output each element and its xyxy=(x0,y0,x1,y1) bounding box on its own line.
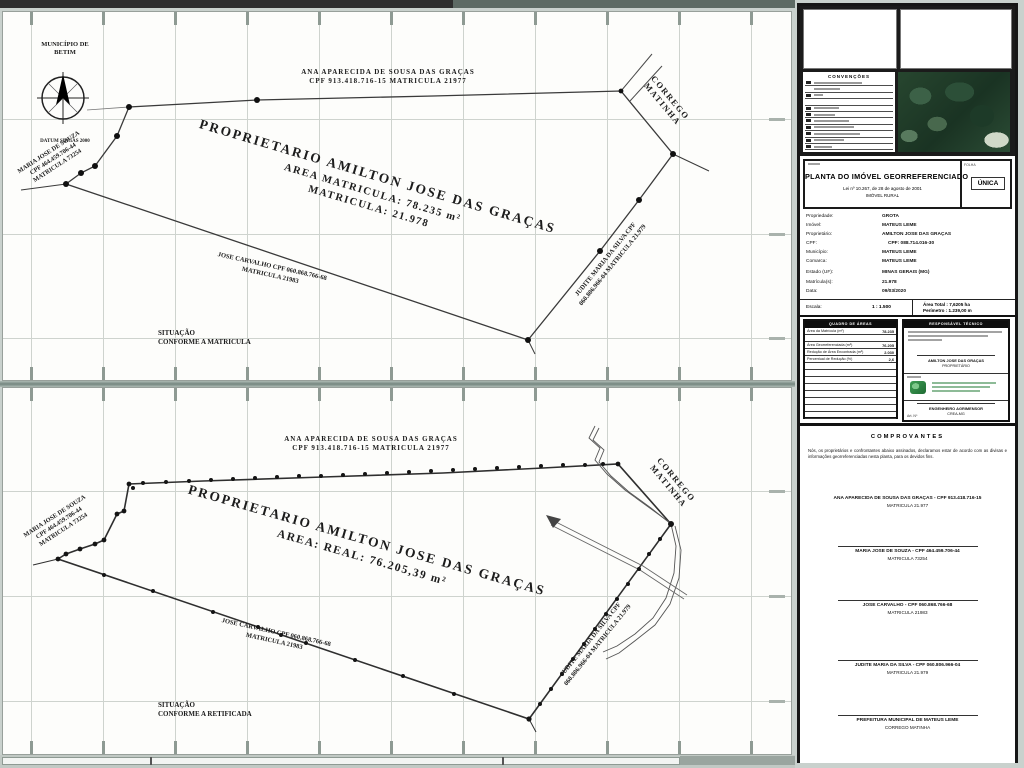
scale-row: Escala: 1 : 1.500 Área Total : 7,6205 ha… xyxy=(800,299,1015,317)
scale-value: 1 : 1.500 xyxy=(872,305,891,310)
sheet-number-value: ÚNICA xyxy=(971,177,1005,190)
stream-lines xyxy=(603,524,676,652)
neighbor-left-label: MARIA JOSE DE SOUZA CPF 464.459.706-44 M… xyxy=(22,493,96,552)
sheet-subtitle1: Lei nº 10.267, de 28 de agosto de 2001 xyxy=(805,186,960,191)
field-value: CPF: 088.714.016-30 xyxy=(888,241,934,246)
map-bottom-drawing: ANA APARECIDA DE SOUSA DAS GRAÇAS CPF 91… xyxy=(3,388,793,756)
field-label: Comarca: xyxy=(806,259,827,264)
sheet-title: PLANTA DO IMÓVEL GEORREFERENCIADO xyxy=(805,172,960,181)
title-block-panel: CONVENÇÕES PLANTA DO IMÓVEL GEORREFERENC… xyxy=(797,3,1018,763)
owner-label: PROPRIETARIO AMILTON JOSE DAS GRAÇAS ARE… xyxy=(182,482,548,615)
property-fields: Propriedade:GROTA Imóvel:MATEUS LEME Pro… xyxy=(800,214,1015,299)
map-top-drawing: MUNICÍPIO DE BETIM DATUM SIRGAS 2000 ANA… xyxy=(3,12,793,382)
comprovantes-title: COMPROVANTES xyxy=(800,434,1015,440)
stream-lines xyxy=(606,526,681,659)
survey-sheet: MUNICÍPIO DE BETIM DATUM SIRGAS 2000 ANA… xyxy=(0,0,1024,768)
areas-row xyxy=(805,370,896,377)
areas-row xyxy=(805,335,896,342)
areas-row xyxy=(805,391,896,398)
owner-label: PROPRIETARIO AMILTON JOSE DAS GRAÇAS ARE… xyxy=(189,116,558,265)
areas-row xyxy=(805,412,896,419)
areas-row xyxy=(805,363,896,370)
areas-row xyxy=(805,384,896,391)
municipality-label: MUNICÍPIO DE xyxy=(41,40,89,48)
field-label: Município: xyxy=(806,250,828,255)
area-total: Área Total : 7,6205 ha xyxy=(923,302,970,307)
comprovantes-paragraph: Nós, os proprietários e confrontantes ab… xyxy=(808,448,1007,460)
field-value: MATEUS LEME xyxy=(882,223,917,228)
field-value: GROTA xyxy=(882,214,899,219)
field-label: Estado (UF): xyxy=(806,270,833,275)
perimeter: Perímetro : 1.239,00 m xyxy=(923,308,972,313)
areas-row xyxy=(805,377,896,384)
svg-text:JUDITE MARIA DA SILVA CPF: JUDITE MARIA DA SILVA CPF xyxy=(559,601,623,677)
compass-leader-line xyxy=(87,107,129,110)
road-lines xyxy=(551,521,687,599)
field-label: Matrícula(s): xyxy=(806,280,833,285)
north-compass-icon xyxy=(37,72,89,124)
stream-label: CORREGO MATINHA xyxy=(647,455,697,510)
vertex-dots xyxy=(56,462,674,722)
parcel-outline xyxy=(58,464,671,719)
situation-label: SITUAÇÃO xyxy=(158,701,196,709)
field-value: MATEUS LEME xyxy=(882,259,917,264)
neighbor-top-label: CPF 913.418.716-15 MATRICULA 21977 xyxy=(292,444,449,452)
field-value: MINAS GERAIS (MG) xyxy=(882,270,929,275)
neighbor-top-label: CPF 913.418.716-15 MATRICULA 21977 xyxy=(309,77,466,85)
field-value: AMILTON JOSE DAS GRAÇAS xyxy=(882,232,951,237)
svg-text:PROPRIETARIO AMILTON JOSE DAS: PROPRIETARIO AMILTON JOSE DAS GRAÇAS xyxy=(187,482,548,599)
neighbor-top-label: ANA APARECIDA DE SOUSA DAS GRAÇAS xyxy=(301,68,474,76)
sheet-number-cell: FOLHA ÚNICA xyxy=(960,161,1013,207)
art-label: Art. Nº xyxy=(907,414,917,418)
scan-bottom-strip xyxy=(0,755,795,768)
signature-block: ANA APARECIDA DE SOUSA DAS GRAÇAS - CPF … xyxy=(806,496,1009,508)
svg-text:PROPRIETARIO AMILTON JOSE DAS: PROPRIETARIO AMILTON JOSE DAS GRAÇAS xyxy=(198,116,558,236)
signature-block: JUDITE MARIA DA SILVA - CPF 060.806.966-… xyxy=(806,660,1009,675)
geo-logo-icon xyxy=(910,381,926,394)
title-box: PLANTA DO IMÓVEL GEORREFERENCIADO Lei nº… xyxy=(803,159,1012,209)
stream-label: CORREGO MATINHA xyxy=(641,73,691,128)
tech-signature-2: ENGENHEIRO AGRIMENSOR CREA-MG xyxy=(910,403,1002,416)
signature-block: JOSE CARVALHO - CPF 060.868.766-68 MATRI… xyxy=(806,600,1009,615)
neighbor-bottom-label: JOSE CARVALHO CPF 060.868.766-68 MATRICU… xyxy=(219,617,332,657)
map-panel-retificada: ANA APARECIDA DE SOUSA DAS GRAÇAS CPF 91… xyxy=(2,387,792,755)
svg-text:JUDITE MARIA DA SILVA CPF: JUDITE MARIA DA SILVA CPF xyxy=(574,221,638,297)
areas-row xyxy=(805,405,896,412)
scan-top-bar xyxy=(0,0,795,8)
situation-label: CONFORME A RETIFICADA xyxy=(158,710,252,718)
tech-signature-1: AMILTON JOSE DAS GRAÇAS PROPRIETÁRIO xyxy=(910,355,1002,368)
field-label: Data: xyxy=(806,289,817,294)
arrow-head xyxy=(546,515,561,528)
signature-block: MARIA JOSE DE SOUZA - CPF 464.459.706-44… xyxy=(806,546,1009,561)
field-label: CPF: xyxy=(806,241,817,246)
areas-row: Redução de Área Encontrada (m²)2.030 xyxy=(805,349,896,356)
tech-box: RESPONSÁVEL TÉCNICO AMILTON JOSE DAS GRA… xyxy=(902,319,1010,422)
svg-text:060.806.966-04 MATRICULA 21.97: 060.806.966-04 MATRICULA 21.979 xyxy=(563,603,633,687)
tech-box-header: RESPONSÁVEL TÉCNICO xyxy=(904,321,1008,328)
field-label: Imóvel: xyxy=(806,223,821,228)
areas-row xyxy=(805,398,896,405)
legend-box: CONVENÇÕES xyxy=(803,72,895,152)
areas-row: Percentual de Redução (%)2,6 xyxy=(805,356,896,363)
areas-row: Área Georreferenciada (m²)76.205 xyxy=(805,342,896,349)
neighbor-right-label: JUDITE MARIA DA SILVA CPF 060.806.966-04… xyxy=(556,597,633,687)
situation-label: CONFORME A MATRICULA xyxy=(158,338,251,346)
certification-strip xyxy=(904,373,1008,401)
sheet-number-label: FOLHA xyxy=(964,163,976,167)
field-label: Proprietário: xyxy=(806,232,832,237)
areas-table: QUADRO DE ÁREAS Área da Matrícula (m²)78… xyxy=(803,319,898,419)
field-label: Propriedade: xyxy=(806,214,833,219)
field-value: 09/03/2020 xyxy=(882,289,906,294)
blank-box-left xyxy=(803,9,897,69)
areas-table-header: QUADRO DE ÁREAS xyxy=(805,321,896,328)
neighbor-right-label: JUDITE MARIA DA SILVA CPF 060.806.966-04… xyxy=(571,217,648,307)
municipality-label: BETIM xyxy=(54,49,76,56)
field-value: 21.978 xyxy=(882,280,897,285)
scale-label: Escala: xyxy=(806,305,822,310)
sheet-subtitle2: IMÓVEL RURAL xyxy=(805,193,960,198)
blank-box-right xyxy=(900,9,1012,69)
field-value: MATEUS LEME xyxy=(882,250,917,255)
signature-block: PREFEITURA MUNICIPAL DE MATEUS LEME CORR… xyxy=(806,715,1009,730)
legend-row xyxy=(805,144,893,150)
neighbor-bottom-label: JOSE CARVALHO CPF 060.868.766-68 MATRICU… xyxy=(215,251,328,291)
map-panel-matricula: MUNICÍPIO DE BETIM DATUM SIRGAS 2000 ANA… xyxy=(2,11,792,381)
comprovantes-section: COMPROVANTES Nós, os proprietários e con… xyxy=(800,423,1015,763)
aerial-photo xyxy=(898,72,1010,152)
neighbor-top-label: ANA APARECIDA DE SOUSA DAS GRAÇAS xyxy=(284,435,457,443)
areas-row: Área da Matrícula (m²)78.235 xyxy=(805,328,896,335)
situation-label: SITUAÇÃO xyxy=(158,329,196,337)
